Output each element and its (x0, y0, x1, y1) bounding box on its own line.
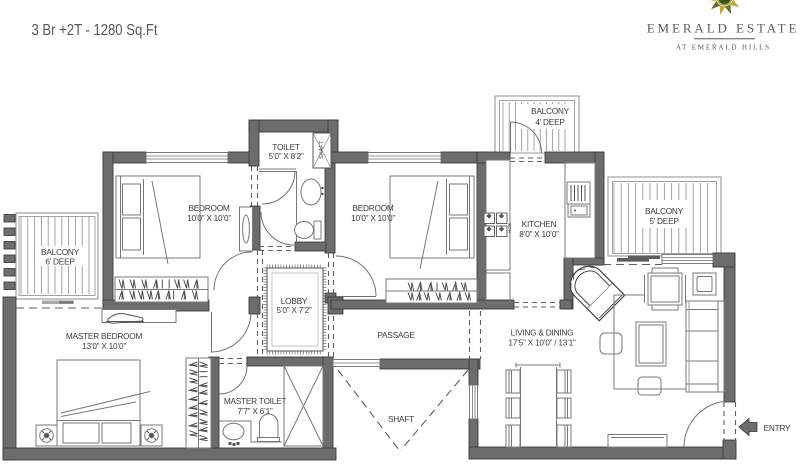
svg-text:4’ DEEP: 4’ DEEP (535, 117, 565, 127)
svg-text:10’0” X 10’0”: 10’0” X 10’0” (351, 213, 395, 223)
svg-text:MASTER TOILET: MASTER TOILET (224, 396, 287, 406)
svg-text:3 Br +2T - 1280 Sq.Ft: 3 Br +2T - 1280 Sq.Ft (32, 22, 158, 39)
svg-text:5’0” X 8’2”: 5’0” X 8’2” (268, 151, 304, 161)
svg-text:ENTRY: ENTRY (764, 423, 791, 433)
svg-text:LIVING & DINING: LIVING & DINING (511, 328, 574, 338)
svg-text:BALCONY: BALCONY (41, 247, 80, 257)
svg-text:BEDROOM: BEDROOM (352, 203, 393, 213)
svg-text:HOB: HOB (507, 223, 512, 233)
svg-text:PASSAGE: PASSAGE (377, 330, 415, 340)
svg-text:5’0” X 7’2”: 5’0” X 7’2” (276, 305, 312, 315)
svg-text:BALCONY: BALCONY (645, 206, 684, 216)
svg-text:MASTER BEDROOM: MASTER BEDROOM (66, 331, 143, 341)
svg-text:SHAFT: SHAFT (319, 140, 325, 159)
svg-text:10’0” X 10’0”: 10’0” X 10’0” (187, 213, 231, 223)
svg-text:6’ DEEP: 6’ DEEP (45, 257, 75, 267)
svg-text:5’ DEEP: 5’ DEEP (649, 216, 679, 226)
svg-text:8’0” X 10’0”: 8’0” X 10’0” (519, 229, 559, 239)
svg-text:17’5” X 10’0” / 13’1”: 17’5” X 10’0” / 13’1” (508, 338, 576, 348)
svg-text:7’7” X 6’1”: 7’7” X 6’1” (237, 406, 273, 416)
svg-text:EMERALD ESTATE: EMERALD ESTATE (647, 21, 800, 36)
svg-text:13’0” X 10’0”: 13’0” X 10’0” (82, 341, 126, 351)
svg-text:SHAFT: SHAFT (388, 414, 414, 424)
svg-text:KITCHEN: KITCHEN (522, 219, 557, 229)
svg-text:AT EMERALD HILLS: AT EMERALD HILLS (676, 43, 771, 52)
svg-text:BALCONY: BALCONY (531, 106, 570, 116)
svg-text:BEDROOM: BEDROOM (188, 203, 229, 213)
